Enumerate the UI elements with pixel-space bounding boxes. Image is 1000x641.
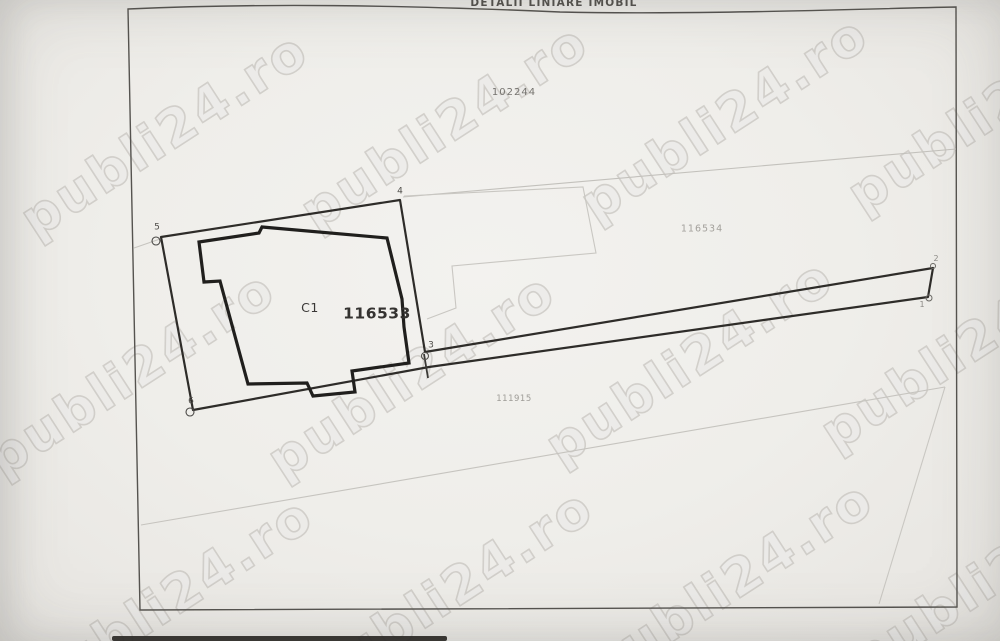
parcel-label-116534: 116534 xyxy=(681,224,723,234)
point-label-2: 2 xyxy=(933,255,938,263)
faint-west-stub xyxy=(134,239,160,248)
parcel-label-102244: 102244 xyxy=(492,88,536,98)
point-label-4: 4 xyxy=(397,188,403,197)
boundary-overshoot xyxy=(424,354,428,378)
point-label-3: 3 xyxy=(428,342,434,351)
page-border xyxy=(128,5,957,610)
parcel-label-111915: 111915 xyxy=(496,395,531,404)
photo-bottom-dark-edge xyxy=(112,636,447,641)
point-label-5: 5 xyxy=(154,224,160,233)
faint-north-boundary xyxy=(403,149,956,197)
building-label-c1: C1 xyxy=(301,302,319,315)
faint-southeast-boundary xyxy=(879,387,945,604)
property-boundary xyxy=(161,200,933,410)
scanned-cadastral-sketch: publi24.ro publi24.ro publi24.ro publi24… xyxy=(0,0,1000,641)
faint-neighbor-outline xyxy=(404,187,596,319)
sketch-title: DETALII LINIARE IMOBIL xyxy=(470,0,637,8)
parcel-label-116533: 116533 xyxy=(343,306,411,322)
point-marker-6 xyxy=(186,408,194,416)
point-label-1: 1 xyxy=(919,301,924,309)
point-label-6: 6 xyxy=(188,398,194,407)
faint-south-boundary xyxy=(141,387,945,525)
